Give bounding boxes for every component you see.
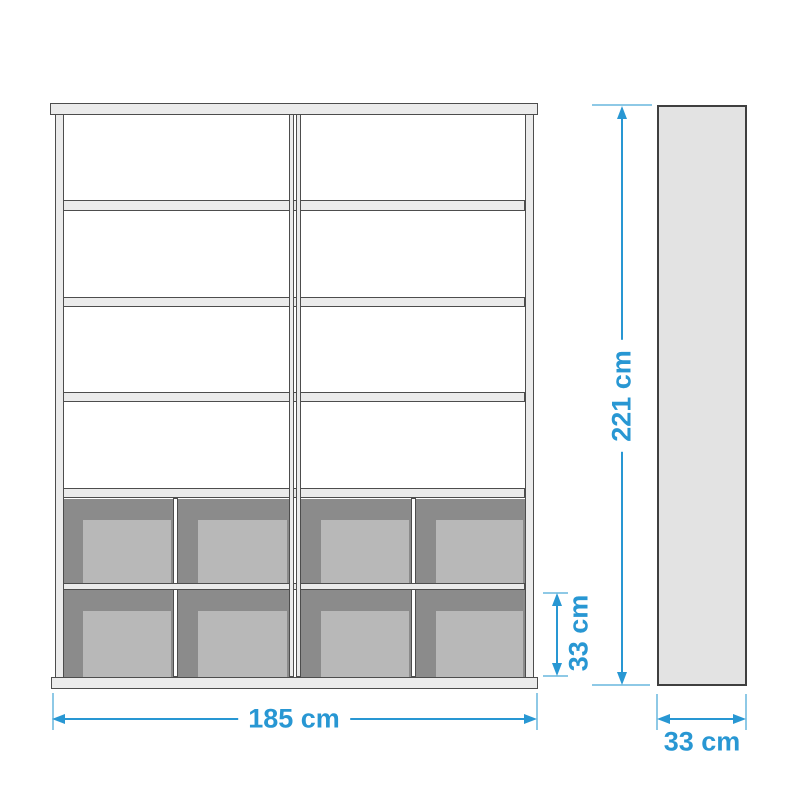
basket-front bbox=[83, 611, 171, 677]
arrowhead-right-icon bbox=[524, 714, 537, 724]
arrowhead-left-icon bbox=[657, 714, 670, 724]
extension-line bbox=[745, 694, 747, 730]
extension-line bbox=[536, 693, 538, 730]
basket bbox=[301, 499, 411, 583]
arrowhead-up-icon bbox=[552, 593, 562, 606]
basket bbox=[301, 590, 411, 677]
front-base-plate bbox=[51, 677, 538, 689]
shelf bbox=[63, 488, 525, 498]
basket-front bbox=[436, 611, 523, 677]
shelf bbox=[63, 392, 525, 402]
basket-front bbox=[83, 520, 171, 583]
dimension-line bbox=[661, 718, 742, 720]
center-divider-right bbox=[296, 114, 301, 677]
basket bbox=[178, 590, 289, 677]
arrowhead-down-icon bbox=[552, 663, 562, 676]
center-divider-left bbox=[289, 114, 294, 677]
basket-front bbox=[198, 611, 287, 677]
arrowhead-left-icon bbox=[52, 714, 65, 724]
basket bbox=[63, 590, 173, 677]
basket bbox=[416, 499, 525, 583]
dimension-line bbox=[556, 597, 558, 671]
dimension-label-width: 185 cm bbox=[238, 704, 350, 735]
basket-front bbox=[321, 611, 409, 677]
front-right-wall bbox=[525, 114, 534, 678]
front-left-wall bbox=[55, 114, 64, 678]
shelf bbox=[63, 297, 525, 307]
dimension-diagram: 185 cm 221 cm 33 cm 33 cm bbox=[0, 0, 800, 800]
shelf bbox=[63, 583, 525, 590]
basket-front bbox=[198, 520, 287, 583]
arrowhead-right-icon bbox=[733, 714, 746, 724]
basket bbox=[416, 590, 525, 677]
side-panel bbox=[657, 105, 747, 686]
basket-front bbox=[436, 520, 523, 583]
arrowhead-up-icon bbox=[617, 106, 627, 119]
extension-line bbox=[656, 694, 658, 730]
front-top-plate bbox=[50, 103, 538, 115]
basket-front bbox=[321, 520, 409, 583]
dimension-label-depth: 33 cm bbox=[664, 729, 741, 756]
extension-line bbox=[52, 693, 54, 730]
basket bbox=[63, 499, 173, 583]
arrowhead-down-icon bbox=[617, 672, 627, 685]
shelf bbox=[63, 200, 525, 211]
dimension-label-basket-row-height: 33 cm bbox=[566, 595, 593, 672]
basket bbox=[178, 499, 289, 583]
dimension-label-height: 221 cm bbox=[607, 340, 638, 452]
